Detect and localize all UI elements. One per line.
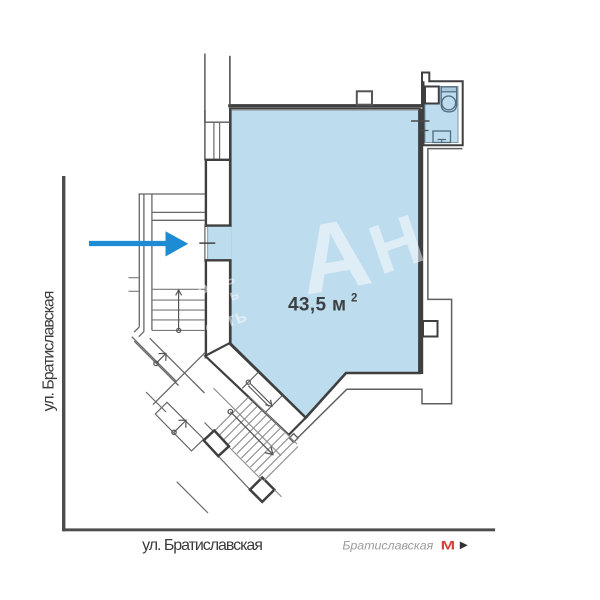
- svg-text:Братиславская: Братиславская: [342, 539, 433, 553]
- svg-text:ул. Братиславская: ул. Братиславская: [142, 537, 262, 554]
- svg-text:М: М: [441, 539, 455, 553]
- svg-text:ул. Братиславская: ул. Братиславская: [41, 291, 58, 411]
